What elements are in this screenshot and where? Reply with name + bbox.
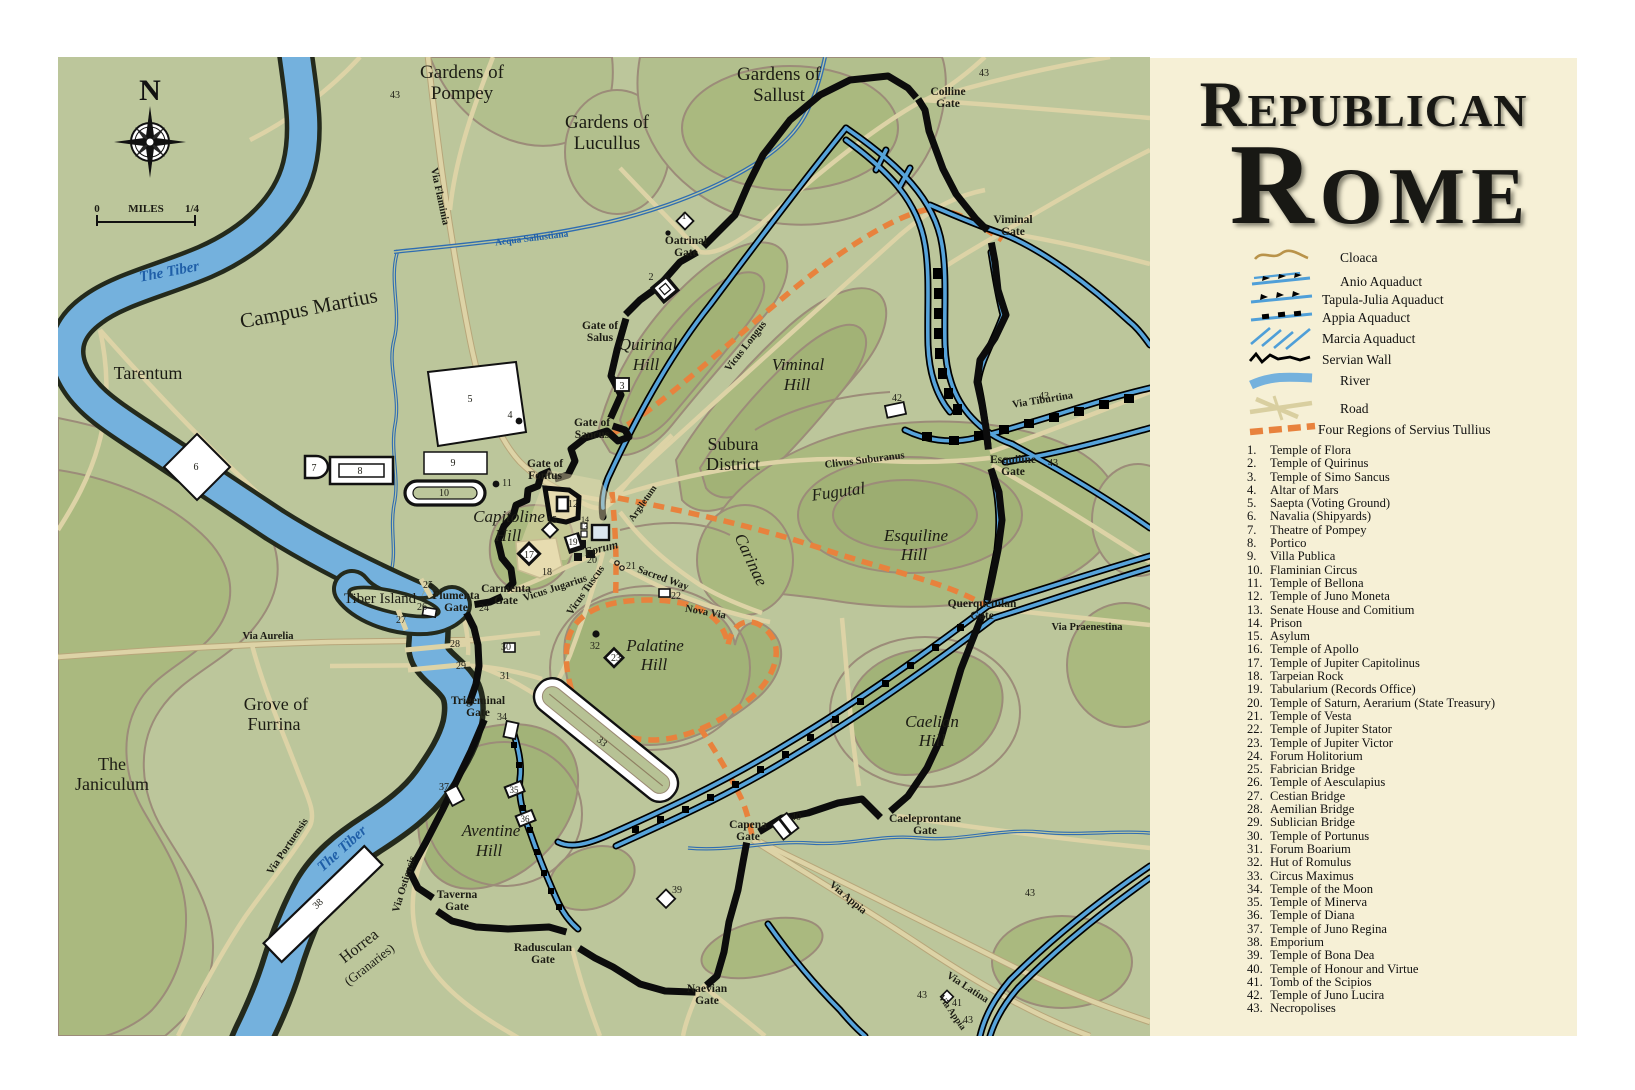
svg-text:18: 18 — [542, 567, 552, 578]
svg-text:37: 37 — [439, 782, 449, 793]
svg-text:23: 23 — [611, 653, 621, 664]
svg-text:Road: Road — [1340, 401, 1369, 416]
svg-text:Hill: Hill — [494, 526, 522, 545]
svg-text:34: 34 — [497, 712, 507, 723]
svg-text:District: District — [706, 454, 760, 474]
svg-text:Oatrinal: Oatrinal — [665, 235, 707, 247]
svg-text:Gate: Gate — [1001, 226, 1025, 238]
svg-text:20: 20 — [587, 555, 597, 566]
svg-text:Querquetulan: Querquetulan — [948, 598, 1017, 610]
svg-text:Hill: Hill — [640, 655, 668, 674]
svg-text:Gate of: Gate of — [527, 458, 563, 470]
svg-text:River: River — [1340, 373, 1370, 388]
svg-text:6: 6 — [194, 462, 199, 473]
svg-text:Tapula-Julia Aquaduct: Tapula-Julia Aquaduct — [1322, 292, 1444, 307]
svg-text:Sallust: Sallust — [753, 85, 805, 106]
svg-text:Gate of: Gate of — [582, 320, 618, 332]
svg-text:30: 30 — [501, 642, 511, 653]
svg-text:28: 28 — [450, 639, 460, 650]
svg-text:43: 43 — [1039, 391, 1049, 402]
svg-text:Via Aurelia: Via Aurelia — [242, 631, 294, 642]
svg-text:Esquiline: Esquiline — [883, 526, 949, 545]
svg-text:10: 10 — [439, 488, 449, 499]
svg-text:8: 8 — [358, 466, 363, 477]
svg-text:27: 27 — [396, 615, 406, 626]
svg-text:Hill: Hill — [475, 841, 503, 860]
svg-text:Flumenta: Flumenta — [432, 590, 480, 602]
svg-text:Aventine: Aventine — [461, 821, 521, 840]
svg-text:Via Praenestina: Via Praenestina — [1051, 622, 1123, 633]
svg-text:29: 29 — [456, 661, 466, 672]
svg-text:Janiculum: Janiculum — [75, 774, 149, 794]
svg-text:43: 43 — [1025, 888, 1035, 899]
svg-text:26: 26 — [417, 602, 427, 613]
svg-text:Tiber Island: Tiber Island — [344, 591, 417, 607]
svg-text:14: 14 — [581, 515, 589, 524]
svg-text:Tarentum: Tarentum — [114, 363, 183, 383]
svg-text:Viminal: Viminal — [993, 214, 1032, 226]
svg-text:1/4: 1/4 — [185, 203, 200, 215]
svg-text:Hill: Hill — [918, 731, 946, 750]
svg-text:Gate: Gate — [494, 595, 518, 607]
svg-text:Gate: Gate — [531, 954, 555, 966]
svg-text:7: 7 — [312, 463, 317, 474]
svg-text:Gardens of: Gardens of — [737, 64, 822, 85]
svg-text:17: 17 — [524, 550, 534, 561]
svg-text:9: 9 — [451, 458, 456, 469]
svg-text:Gate: Gate — [913, 825, 937, 837]
svg-text:Lucullus: Lucullus — [574, 133, 641, 154]
svg-text:Quirinal: Quirinal — [619, 335, 678, 354]
svg-text:3: 3 — [620, 381, 625, 392]
svg-text:Radusculan: Radusculan — [514, 942, 573, 954]
svg-text:Marcia Aquaduct: Marcia Aquaduct — [1322, 331, 1416, 346]
svg-text:Appia Aquaduct: Appia Aquaduct — [1322, 310, 1410, 325]
svg-text:19: 19 — [569, 537, 579, 547]
svg-text:Gardens of: Gardens of — [565, 112, 650, 133]
svg-text:21: 21 — [626, 561, 636, 572]
svg-text:43: 43 — [1048, 458, 1058, 469]
svg-text:4: 4 — [508, 410, 513, 421]
svg-text:43: 43 — [390, 90, 400, 101]
svg-text:40: 40 — [791, 812, 801, 823]
svg-text:Cloaca: Cloaca — [1340, 250, 1377, 265]
svg-text:Gate: Gate — [970, 610, 994, 622]
svg-text:Colline: Colline — [930, 86, 965, 98]
svg-text:Capitoline: Capitoline — [473, 507, 545, 526]
svg-text:Esquiline: Esquiline — [990, 454, 1036, 466]
svg-text:The: The — [98, 754, 126, 774]
svg-text:Gate: Gate — [736, 831, 760, 843]
svg-text:12: 12 — [568, 499, 578, 510]
svg-text:Gate of: Gate of — [574, 417, 610, 429]
svg-text:31: 31 — [500, 671, 510, 682]
svg-text:Four Regions of Servius Tulliu: Four Regions of Servius Tullius — [1318, 422, 1491, 437]
svg-text:Servian Wall: Servian Wall — [1322, 352, 1392, 367]
svg-text:Salus: Salus — [587, 332, 614, 344]
svg-text:Taverna: Taverna — [437, 889, 478, 901]
svg-text:Hill: Hill — [783, 375, 811, 394]
svg-text:Palatine: Palatine — [625, 636, 684, 655]
svg-text:43: 43 — [963, 1015, 973, 1026]
svg-text:1: 1 — [682, 211, 687, 222]
svg-text:39: 39 — [672, 885, 682, 896]
svg-text:Gate: Gate — [936, 98, 960, 110]
svg-text:5: 5 — [468, 394, 473, 405]
svg-text:41: 41 — [952, 998, 962, 1009]
svg-text:Gate: Gate — [466, 707, 490, 719]
svg-text:35: 35 — [510, 785, 520, 795]
svg-text:Gate: Gate — [445, 901, 469, 913]
svg-text:Hill: Hill — [900, 545, 928, 564]
svg-text:43: 43 — [917, 990, 927, 1001]
svg-text:15: 15 — [547, 515, 557, 526]
svg-text:42: 42 — [892, 393, 902, 404]
svg-text:Subura: Subura — [708, 434, 759, 454]
svg-text:Naevian: Naevian — [687, 983, 728, 995]
svg-text:Gate: Gate — [444, 602, 468, 614]
svg-text:2: 2 — [649, 272, 654, 283]
svg-text:25: 25 — [423, 580, 433, 591]
svg-text:43: 43 — [979, 68, 989, 79]
svg-text:11: 11 — [502, 478, 512, 489]
svg-text:Gate: Gate — [1001, 466, 1025, 478]
svg-text:Caelian: Caelian — [905, 712, 959, 731]
svg-text:Trigeminal: Trigeminal — [451, 695, 505, 707]
svg-text:Pompey: Pompey — [431, 83, 494, 104]
svg-text:Viminal: Viminal — [772, 355, 825, 374]
svg-text:Furrina: Furrina — [248, 714, 301, 734]
svg-text:Gardens of: Gardens of — [420, 62, 505, 83]
svg-text:Capena: Capena — [729, 819, 767, 831]
svg-text:32: 32 — [590, 641, 600, 652]
svg-text:Gate: Gate — [695, 995, 719, 1007]
svg-text:Caeleprontane: Caeleprontane — [889, 813, 961, 825]
svg-text:0: 0 — [94, 203, 100, 215]
svg-text:Anio Aquaduct: Anio Aquaduct — [1340, 274, 1422, 289]
svg-text:Fontus: Fontus — [528, 470, 562, 482]
svg-text:Hill: Hill — [632, 355, 660, 374]
svg-text:Gate: Gate — [674, 247, 698, 259]
svg-text:MILES: MILES — [128, 203, 163, 215]
svg-text:22: 22 — [671, 591, 681, 602]
svg-text:Grove of: Grove of — [244, 694, 308, 714]
svg-text:36: 36 — [521, 814, 531, 824]
svg-text:N: N — [139, 74, 161, 107]
svg-text:Sancus: Sancus — [575, 429, 610, 441]
svg-text:24: 24 — [479, 603, 489, 614]
